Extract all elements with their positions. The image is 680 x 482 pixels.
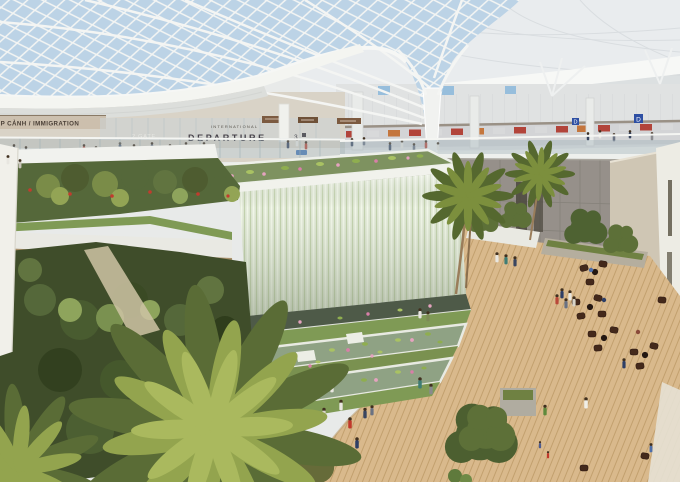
airport-atrium-rendering: Architectural rendering of an airport te…: [0, 0, 680, 482]
seated-person: [589, 268, 593, 272]
concourse-column: [279, 104, 289, 142]
immigration-sign: NHẬP CẢNH / IMMIGRATION: [0, 115, 106, 129]
seated-person: [602, 298, 606, 302]
gate-pictogram: [302, 133, 306, 137]
window-slit: [668, 180, 672, 236]
upper-terrace-garden: [0, 144, 240, 258]
seated-person: [636, 330, 640, 334]
rendering-canvas: D D NHẬP CẢNH / IMMIGRATION: [0, 0, 680, 482]
